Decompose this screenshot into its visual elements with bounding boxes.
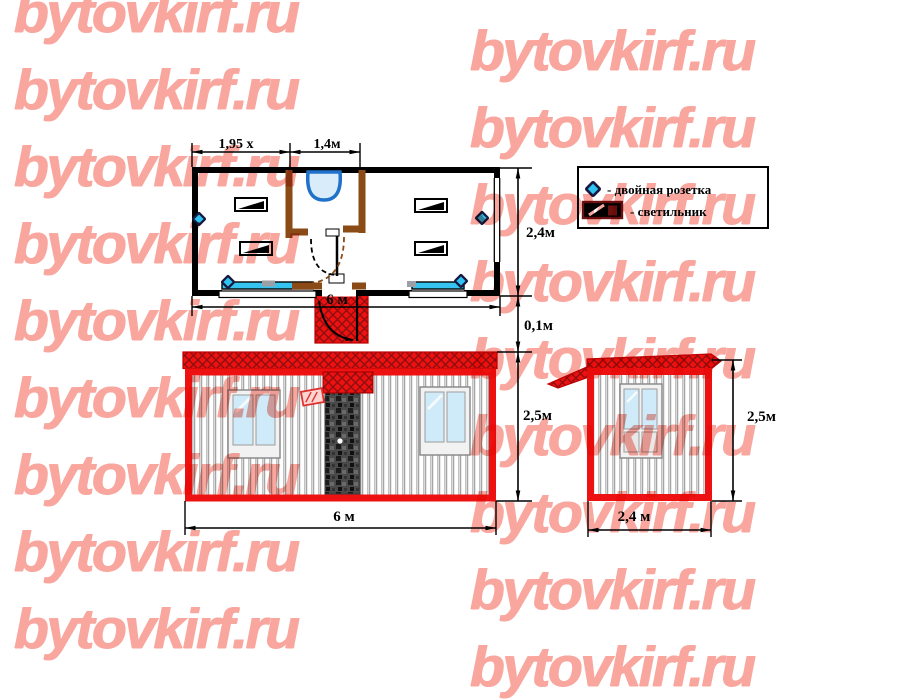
legend: - двойная розетка - светильник — [578, 167, 768, 228]
dim-side-width: 2,4 м — [618, 509, 651, 525]
dim-front-width: 6 м — [333, 509, 354, 525]
front-window-right — [420, 387, 470, 455]
dim-room-width: 1,95 х — [219, 137, 254, 152]
canopy-bracket — [301, 388, 324, 405]
ceiling-light-icon — [240, 242, 272, 255]
door-canopy — [323, 372, 373, 393]
floor-plan — [191, 170, 500, 343]
roof-band — [183, 352, 497, 369]
cabin-technical-drawing: - двойная розетка - светильник — [0, 0, 900, 675]
front-elevation — [183, 352, 497, 502]
dim-plan-depth: 2,4м — [526, 225, 555, 241]
door-knob — [337, 438, 342, 443]
ceiling-light-icon — [235, 198, 267, 211]
plan-end-window — [494, 178, 501, 262]
roof-overhang — [548, 366, 589, 388]
front-window-left — [228, 390, 280, 458]
entry-door-front — [325, 393, 360, 494]
sink — [308, 172, 341, 200]
dim-side-height: 2,5м — [747, 409, 776, 425]
window-vent — [407, 281, 416, 287]
dim-gap: 0,1м — [524, 318, 553, 334]
dim-front-height: 2,5м — [523, 408, 552, 424]
dim-entry-width: 1,4м — [313, 137, 341, 152]
side-window — [620, 384, 662, 458]
light-fixture-icon — [583, 202, 622, 218]
drawing-canvas: - двойная розетка - светильник — [0, 0, 900, 675]
window-vent — [262, 281, 275, 287]
legend-socket-label: - двойная розетка — [607, 182, 712, 197]
dim-plan-total-width: 6 м — [326, 292, 347, 308]
ceiling-light-icon — [415, 199, 447, 212]
side-elevation — [548, 354, 721, 501]
ceiling-light-icon — [415, 242, 447, 255]
legend-light-label: - светильник — [630, 204, 707, 219]
